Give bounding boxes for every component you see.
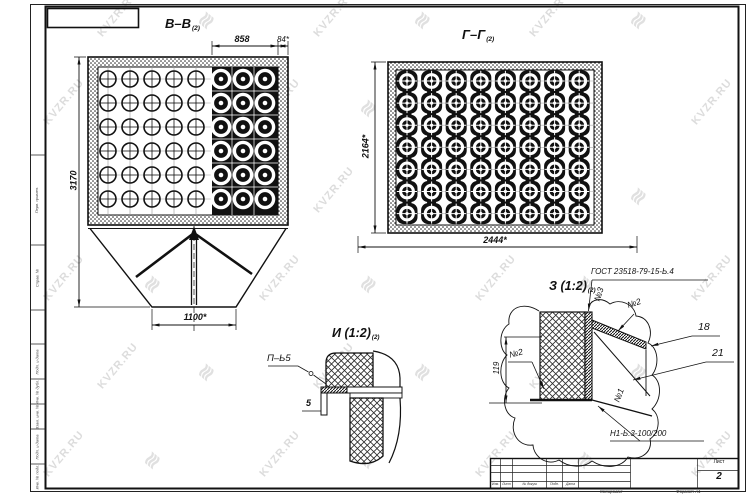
sheet-caption: Лист (700, 460, 738, 465)
side-stamp-cell: Инв. № подл. (35, 464, 39, 489)
dim-858: 858 (224, 35, 260, 44)
dim-3170: 3170 (70, 159, 79, 203)
weld-label-i: П–Ь5 (267, 354, 291, 364)
insulation-block (540, 312, 585, 400)
title-block-column-caption: Лист (501, 483, 512, 486)
drawing-sheet: ≋KVZR.RU≋KVZR.RU≋KVZR.RU≋KVZR.RU≋KVZR.RU… (0, 0, 750, 500)
dim-84: 84* (271, 36, 295, 44)
footer-kopiroval: Копировал (600, 490, 622, 495)
dim-2444: 2444* (470, 236, 520, 245)
item-18-label: 18 (698, 322, 710, 333)
detail-z-title: З (1:2)(2) (549, 280, 596, 294)
gost-label: ГОСТ 23518-79-15-Ь.4 (591, 268, 674, 276)
title-block-column-caption: № докум. (514, 483, 546, 486)
title-block-column-caption: Дата (563, 483, 578, 486)
dim-2164: 2164* (362, 125, 371, 169)
weld-leader (268, 366, 326, 384)
footer-format: Формат А1 (676, 490, 701, 495)
item-21-label: 21 (712, 348, 724, 359)
side-stamp-cell: Перв. примен. (35, 155, 39, 245)
sheet-number: 2 (700, 472, 738, 482)
detail-z-view (489, 280, 734, 466)
side-stamp-cell: Подп. и дата (35, 344, 39, 379)
section-gg-view (358, 62, 637, 253)
top-left-stamp-box (48, 9, 139, 28)
detail-i-title: И (1:2)(2) (332, 327, 380, 341)
dim-1100: 1100* (176, 313, 214, 322)
tube-grid-finned (212, 67, 278, 215)
dim-5: 5 (306, 399, 311, 408)
side-stamp-cell: Инв. № дубл. (35, 379, 39, 404)
side-stamp-cell: Подп. и дата (35, 429, 39, 464)
section-bb-title: В–В(2) (165, 17, 200, 32)
title-block-column-caption: Изм. (491, 483, 500, 486)
section-bb-view (74, 41, 288, 334)
side-stamp-cell: Взам. инв. № (35, 404, 39, 429)
section-gg-title: Г–Г(2) (462, 28, 494, 43)
wall-plate (585, 312, 592, 400)
title-block-column-caption: Подп. (547, 483, 562, 486)
drawing-geometry (0, 0, 750, 500)
side-stamp-cell: Справ. № (35, 245, 39, 310)
angled-plate-18 (592, 320, 646, 349)
weld-label-z: Н1-Ь.3-100/200 (610, 430, 666, 438)
dim-119: 119 (493, 353, 501, 383)
detail-i-view (268, 351, 402, 464)
